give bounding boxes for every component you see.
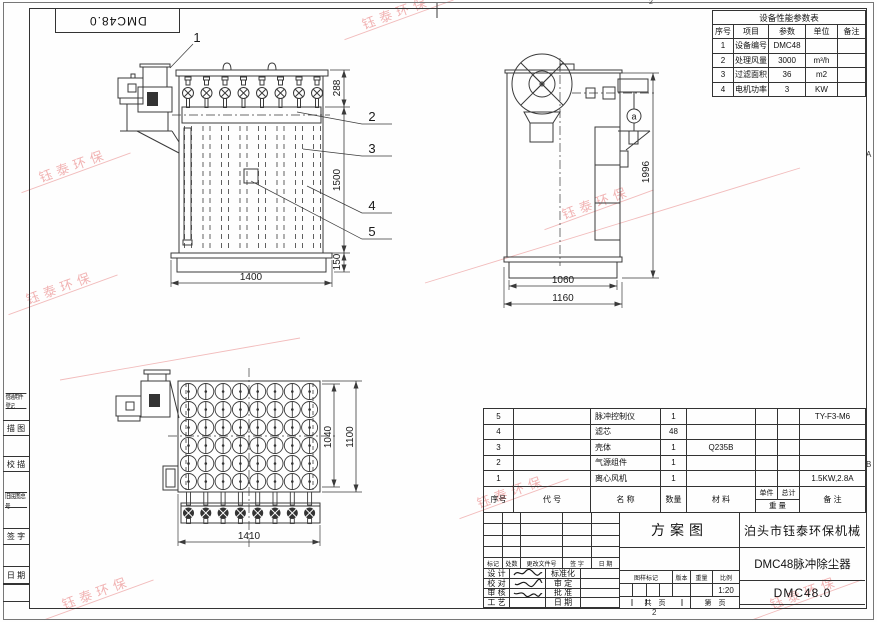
revision-table: 标记 处数 更改文件号 签 字 日 期 bbox=[483, 512, 620, 569]
signature-scribble bbox=[513, 569, 543, 578]
bom-row: 2 bbox=[484, 456, 514, 472]
margin-label-check-tracing: 校 描 bbox=[3, 456, 29, 472]
zone-label-bottom: 2 bbox=[652, 608, 656, 617]
title-block-right: 泊头市钰泰环保机械 DMC48脉冲除尘器 DMC48.0 bbox=[740, 512, 865, 607]
margin-label-signature: 签 字 bbox=[3, 528, 29, 545]
drawing-sheet: 钰泰环保 钰泰环保 钰泰环保 钰泰环保 钰泰环保 钰泰环保 钰泰环保 bbox=[0, 0, 877, 622]
signature-scribble bbox=[513, 579, 543, 588]
zone-label-right-a: A bbox=[866, 150, 871, 159]
model-number: DMC48.0 bbox=[740, 581, 865, 605]
model-stamp-text: DMC48.0 bbox=[89, 14, 147, 28]
product-name: DMC48脉冲除尘器 bbox=[740, 548, 865, 581]
margin-label-tracing: 描 图 bbox=[3, 420, 29, 436]
sheet-number: 第 页 bbox=[691, 597, 740, 609]
bom-row: 3 bbox=[484, 440, 514, 456]
equipment-parameters-table: 设备性能参数表 序号 项目 参数 单位 备注 1 设备编号 DMC48 2 处理… bbox=[712, 10, 866, 97]
model-stamp: DMC48.0 bbox=[55, 8, 180, 33]
zone-label-right-b: B bbox=[866, 460, 871, 469]
bom-table: 5 脉冲控制仪 1 TY-F3-M6 4 滤芯 48 3 壳体 1 Q235B … bbox=[483, 408, 866, 513]
equipment-table-title: 设备性能参数表 bbox=[713, 11, 866, 25]
company-name: 泊头市钰泰环保机械 bbox=[740, 513, 865, 548]
zone-label-top: 2 bbox=[649, 0, 653, 6]
doc-type: 方案图 bbox=[620, 513, 740, 548]
signature-scribble bbox=[513, 589, 543, 598]
bom-row: 5 bbox=[484, 409, 514, 425]
margin-label-common-parts: 借通用件登记 bbox=[6, 393, 27, 409]
sheet-total: 共 页 bbox=[620, 597, 691, 609]
bom-row: 4 bbox=[484, 425, 514, 441]
drawing-scale: 1:20 bbox=[713, 584, 740, 597]
margin-label-old-drawing-no: 旧底图总号 bbox=[5, 492, 27, 508]
margin-box-empty bbox=[3, 583, 29, 602]
bom-row: 1 bbox=[484, 471, 514, 487]
title-block-middle: 方案图 图样标记 版本 重量 比例 1:20 共 页 第 页 bbox=[619, 512, 740, 607]
signature-table: 设 计 标准化 校 对 审 定 审 核 批 准 工 艺 日 期 bbox=[483, 568, 620, 608]
